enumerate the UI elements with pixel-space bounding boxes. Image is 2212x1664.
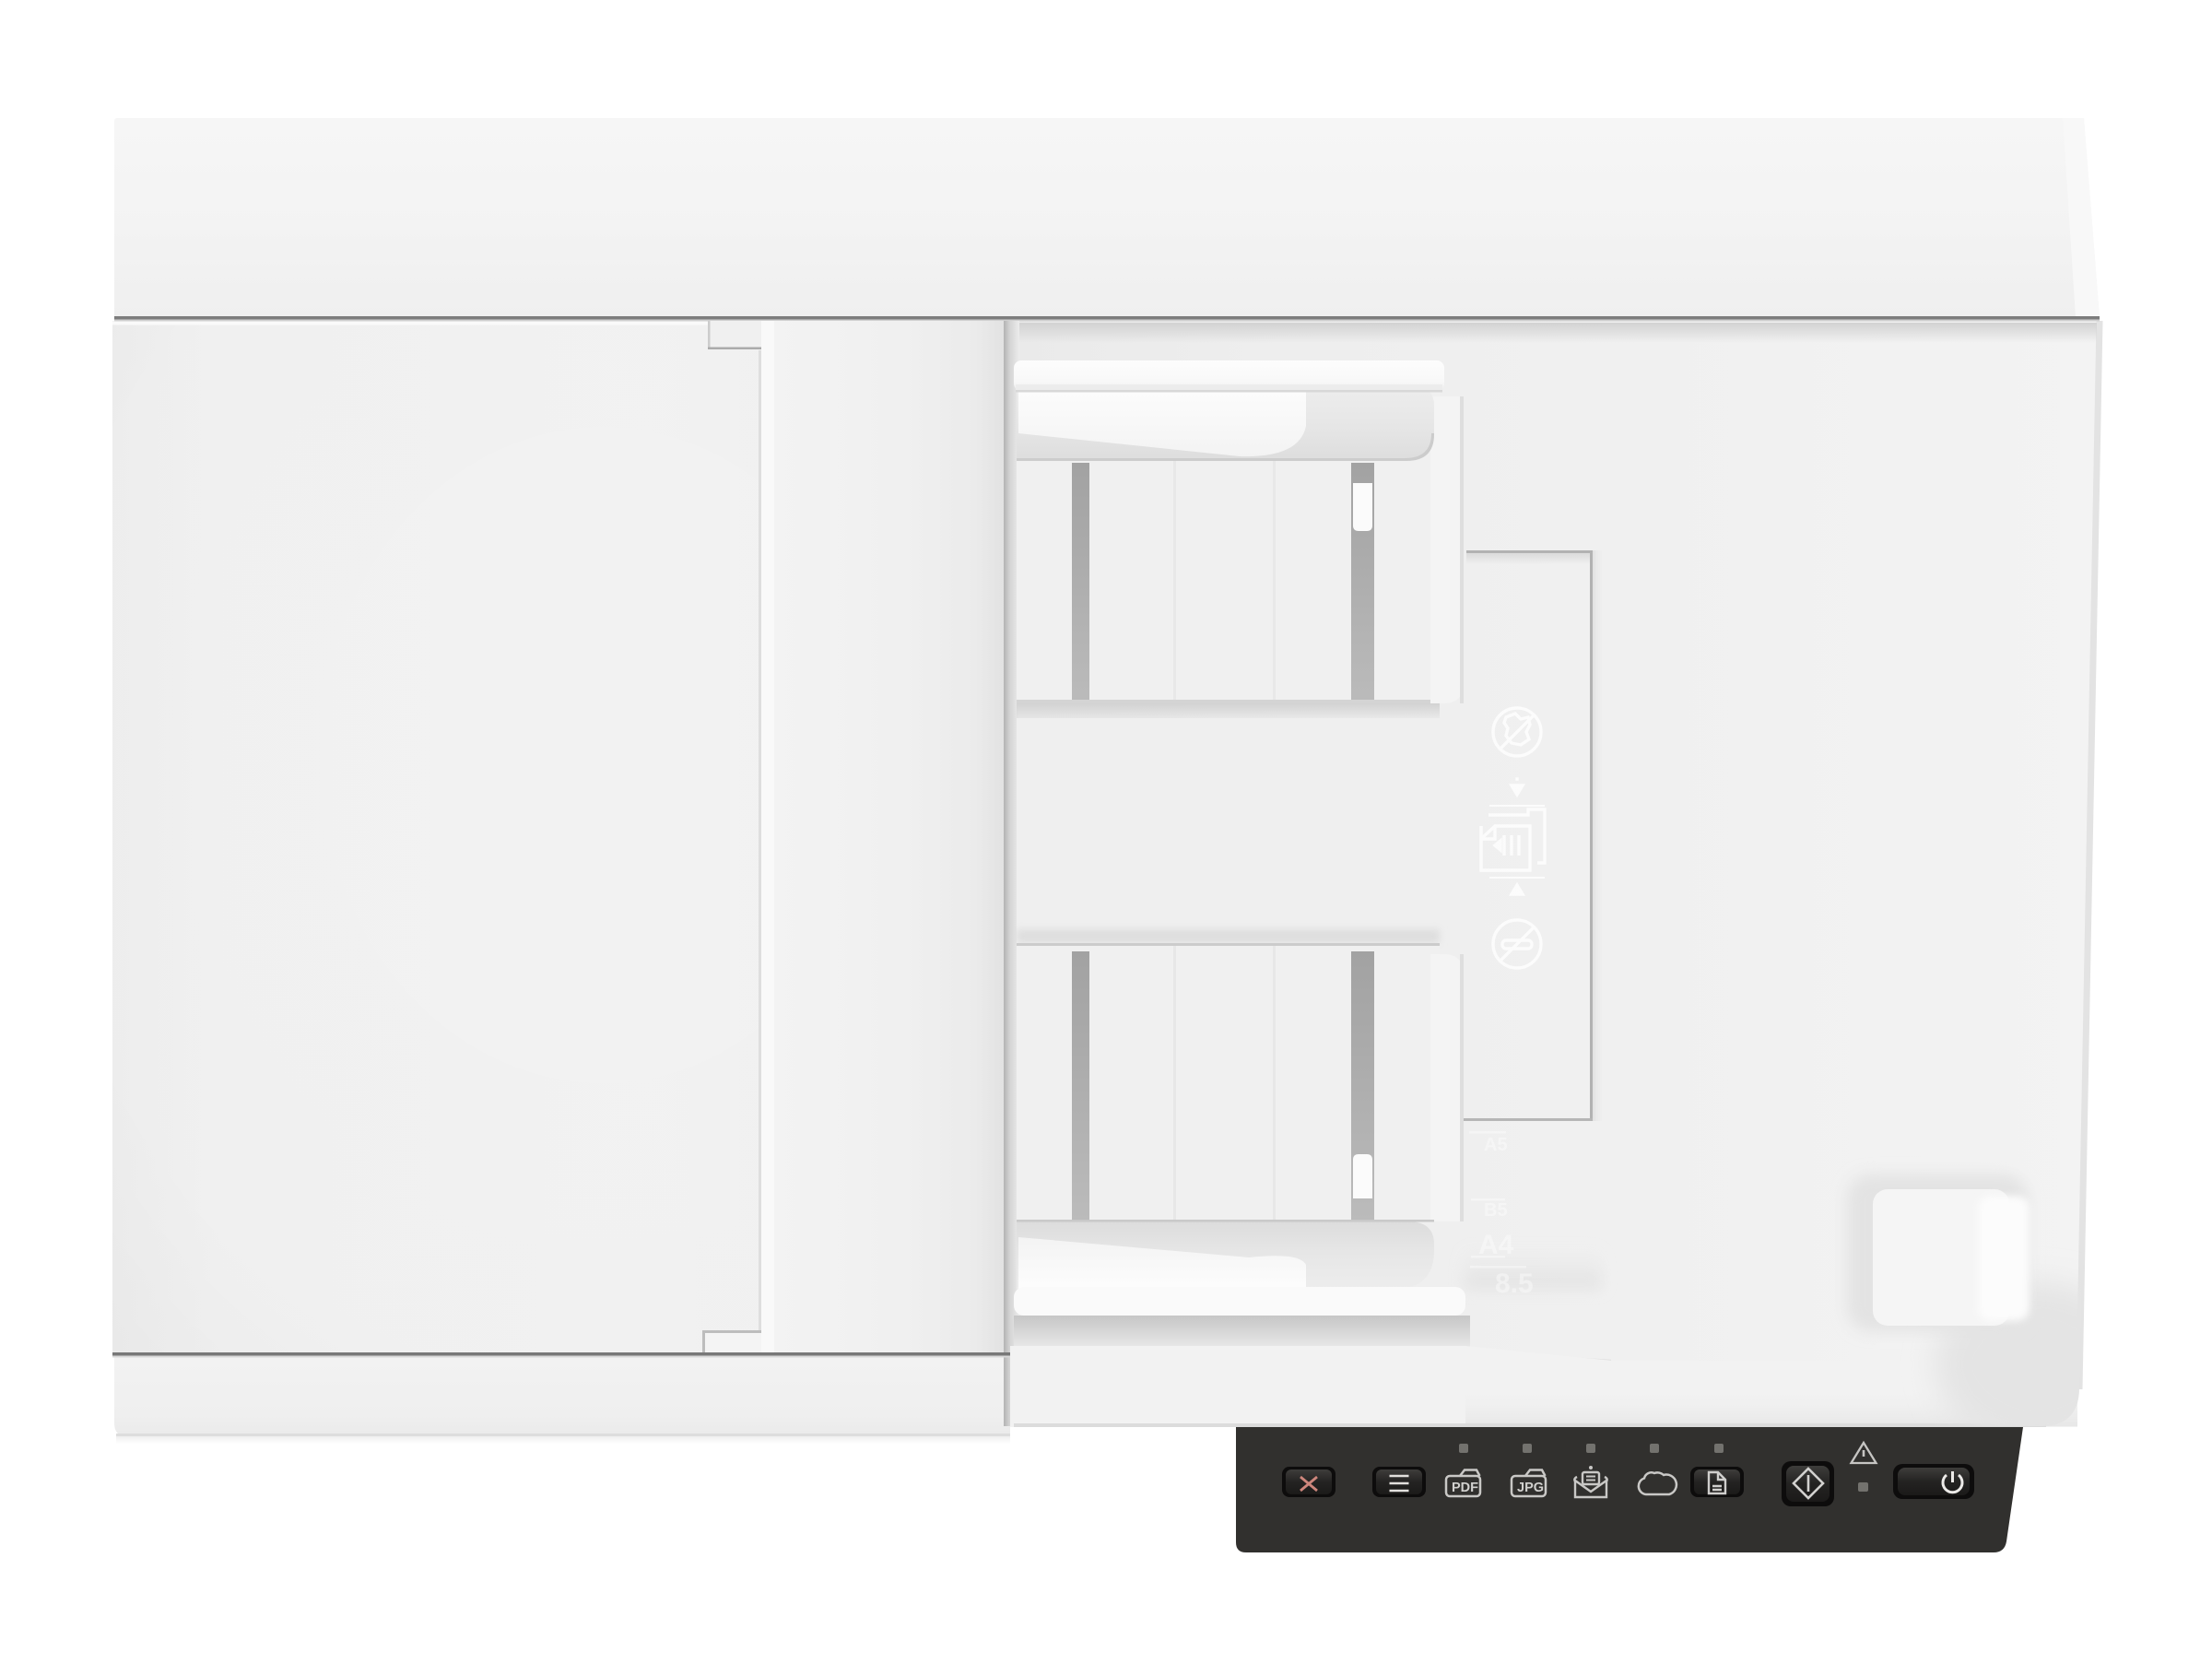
svg-text:PDF: PDF: [1452, 1481, 1478, 1495]
svg-text:A5: A5: [1484, 1135, 1508, 1155]
svg-text:8.5: 8.5: [1495, 1269, 1534, 1299]
svg-text:JPG: JPG: [1517, 1481, 1544, 1495]
svg-text:B5: B5: [1484, 1200, 1508, 1221]
